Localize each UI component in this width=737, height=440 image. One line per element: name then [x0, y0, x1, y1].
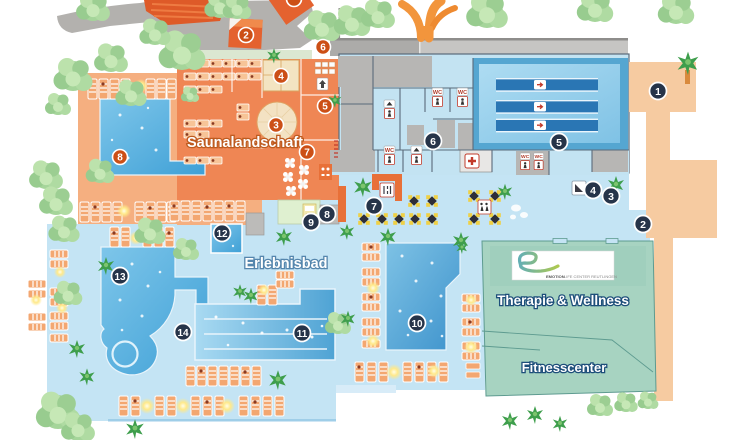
svg-text:4: 4 — [590, 185, 596, 197]
svg-text:12: 12 — [216, 229, 228, 240]
svg-text:5: 5 — [322, 102, 328, 113]
svg-text:2: 2 — [243, 31, 249, 42]
svg-text:11: 11 — [297, 329, 308, 340]
svg-text:1: 1 — [655, 86, 661, 98]
svg-text:Fitnesscenter: Fitnesscenter — [522, 360, 607, 375]
svg-text:13: 13 — [114, 272, 126, 283]
svg-text:2: 2 — [640, 219, 646, 231]
svg-text:3: 3 — [608, 191, 614, 203]
svg-text:8: 8 — [324, 209, 330, 221]
svg-text:EMOTION: EMOTION — [546, 274, 565, 279]
svg-text:7: 7 — [371, 201, 377, 213]
svg-text:9: 9 — [308, 217, 314, 229]
svg-text:5: 5 — [556, 137, 562, 149]
svg-text:10: 10 — [411, 319, 423, 330]
svg-text:8: 8 — [117, 153, 123, 164]
svg-text:6: 6 — [430, 136, 436, 148]
svg-text:3: 3 — [273, 121, 279, 132]
svg-text:Therapie & Wellness: Therapie & Wellness — [497, 293, 629, 308]
svg-text:4: 4 — [278, 72, 284, 83]
svg-text:6: 6 — [320, 43, 326, 54]
svg-text:14: 14 — [177, 328, 189, 339]
svg-text:Erlebnisbad: Erlebnisbad — [245, 256, 328, 272]
svg-text:Saunalandschaft: Saunalandschaft — [187, 135, 303, 151]
svg-text:7: 7 — [304, 148, 310, 159]
svg-text:LIFE CENTER REUTLINGEN: LIFE CENTER REUTLINGEN — [564, 274, 617, 279]
